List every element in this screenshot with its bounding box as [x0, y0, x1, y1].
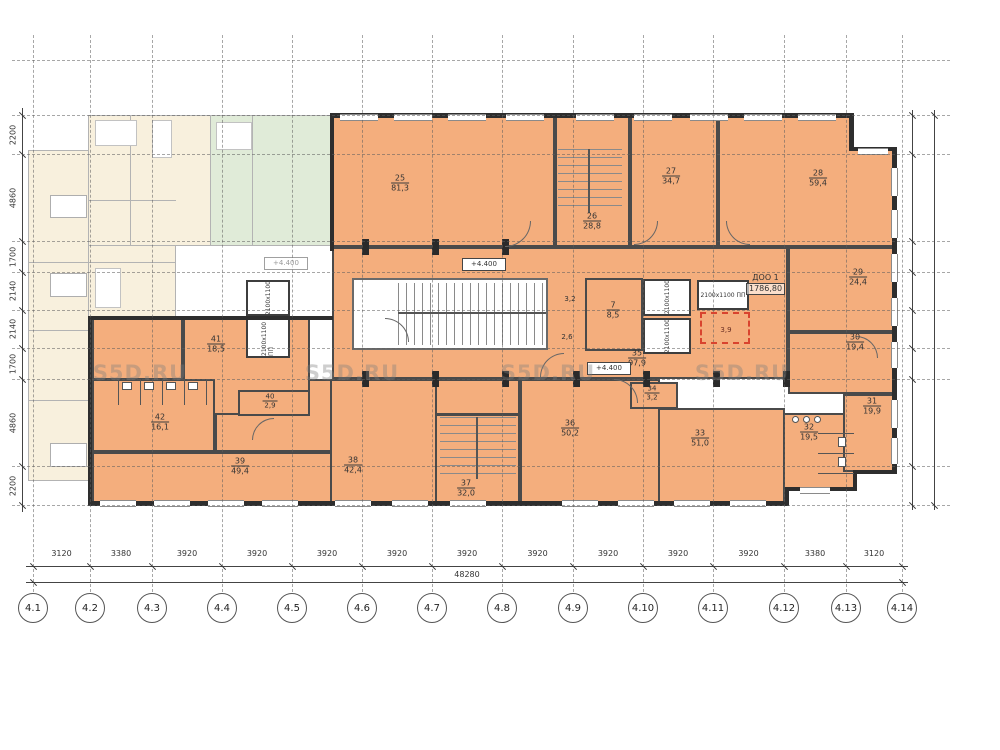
stall-divider: [818, 473, 854, 474]
dimension-label: 3920: [457, 549, 477, 558]
grid-line-horizontal: [12, 115, 950, 116]
watermark: S5D.RU: [305, 361, 399, 385]
room-33: [658, 408, 785, 505]
room-label: 402,9: [263, 393, 278, 410]
room-label: 3219,5: [800, 423, 818, 442]
window: [891, 210, 898, 238]
room-area: 8,5: [607, 311, 620, 320]
axis-label: 4.12: [773, 603, 795, 614]
room-area: 28,8: [583, 222, 601, 231]
grid-line-horizontal: [12, 154, 950, 155]
room-number: 29: [849, 268, 867, 278]
area-label: 3,2: [564, 295, 575, 303]
room-area: 3,2: [645, 394, 660, 402]
window: [891, 438, 898, 464]
axis-bubble-4.4: 4.4: [207, 593, 237, 623]
wall: [330, 113, 334, 251]
room-number: 38: [344, 456, 362, 466]
doo-title: ДОО 1: [752, 273, 778, 282]
room-39: [92, 452, 332, 505]
room-label: 2734,7: [662, 167, 680, 186]
ghost-balcony: [50, 443, 87, 467]
room-30: [788, 332, 895, 394]
grid-line-horizontal: [12, 505, 950, 506]
room-number: 36: [561, 419, 579, 429]
dimension-label: 3920: [247, 549, 267, 558]
grid-line-vertical: [643, 35, 644, 592]
room-number: 39: [231, 457, 249, 467]
dimension-label: 3380: [805, 549, 825, 558]
window: [891, 254, 898, 282]
grid-line-vertical: [33, 35, 34, 592]
axis-label: 4.6: [354, 603, 370, 614]
elevation-marker: +4.400: [264, 257, 308, 270]
room-label: 2581,3: [391, 174, 409, 193]
room-label: 3119,9: [863, 397, 881, 416]
ghost-wall: [28, 150, 89, 151]
room-number: 41: [207, 335, 225, 345]
room-number: 30: [846, 333, 864, 343]
grid-line-vertical: [222, 35, 223, 592]
ghost-wall: [28, 480, 89, 481]
area-label: 2,6: [561, 333, 572, 341]
dimension-label: 3920: [598, 549, 618, 558]
floor-plan: ДОО 1 1786,80 48280 2581,32628,82734,728…: [0, 0, 1000, 750]
room-label: 3650,2: [561, 419, 579, 438]
stall-divider: [206, 379, 207, 405]
dimension-label: 2140: [9, 281, 18, 301]
ghost-wall: [28, 150, 29, 481]
grid-line-vertical: [502, 35, 503, 592]
axis-bubble-4.3: 4.3: [137, 593, 167, 623]
dimension-total: 48280: [454, 570, 479, 579]
axis-bubble-4.7: 4.7: [417, 593, 447, 623]
axis-bubble-4.2: 4.2: [75, 593, 105, 623]
dimension-label: 3120: [864, 549, 884, 558]
axis-label: 4.2: [82, 603, 98, 614]
room-number: 31: [863, 397, 881, 407]
dimension-label: 2200: [9, 475, 18, 495]
axis-label: 4.7: [424, 603, 440, 614]
room-label: 2859,4: [809, 169, 827, 188]
axis-bubble-4.5: 4.5: [277, 593, 307, 623]
axis-label: 4.8: [494, 603, 510, 614]
dimension-line: [26, 582, 908, 583]
axis-bubble-4.12: 4.12: [769, 593, 799, 623]
room-number: 42: [151, 413, 169, 423]
window: [891, 342, 898, 368]
room-area: 50,2: [561, 429, 579, 438]
room-label: 4216,1: [151, 413, 169, 432]
elevator-shaft: 2100х1100 ПП: [246, 318, 290, 358]
room-number: 27: [662, 167, 680, 177]
axis-label: 4.3: [144, 603, 160, 614]
notch-fill: [855, 474, 897, 505]
room-area: 32,0: [457, 489, 475, 498]
sink-fixture: [792, 416, 799, 423]
staircase-37-stringer: [476, 417, 478, 479]
grid-line-horizontal: [12, 466, 950, 467]
ghost-wall: [88, 245, 176, 246]
toilet-fixture: [838, 437, 846, 447]
wall: [849, 113, 854, 151]
axis-label: 4.10: [632, 603, 654, 614]
axis-label: 4.9: [565, 603, 581, 614]
room-number: 34: [645, 385, 660, 394]
room-label: 4118,5: [207, 335, 225, 354]
elevator-shaft: 2100х1100 ПП: [697, 280, 749, 310]
dimension-label: 1700: [9, 353, 18, 373]
dimension-label: 3920: [177, 549, 197, 558]
grid-line-vertical: [902, 35, 903, 592]
notch-fill: [853, 115, 897, 148]
ghost-fixture: [95, 120, 137, 146]
room-number: 40: [263, 393, 278, 402]
grid-line-vertical: [362, 35, 363, 592]
room-label: 343,2: [645, 385, 660, 402]
axis-label: 4.13: [835, 603, 857, 614]
ghost-fixture: [95, 268, 121, 308]
ghost-wall: [210, 115, 211, 246]
axis-bubble-4.14: 4.14: [887, 593, 917, 623]
room-number: 37: [457, 479, 475, 489]
room-label: 3949,4: [231, 457, 249, 476]
room-number: 28: [809, 169, 827, 179]
room-29: [788, 247, 895, 332]
room-area: 59,4: [809, 179, 827, 188]
ghost-balcony: [50, 195, 87, 218]
ghost-wall: [252, 115, 253, 245]
total-area-label: ДОО 1 1786,80: [746, 273, 785, 295]
dimension-label: 3920: [527, 549, 547, 558]
room-38: [330, 379, 437, 505]
red-room-area: 3,9: [720, 326, 731, 334]
window: [891, 400, 898, 428]
grid-line-horizontal: [12, 348, 950, 349]
grid-line-vertical: [292, 35, 293, 592]
room-label: 2924,4: [849, 268, 867, 287]
ghost-wall: [175, 245, 176, 319]
window: [800, 487, 830, 494]
grid-line-horizontal: [12, 60, 950, 61]
room-area: 49,4: [231, 467, 249, 476]
grid-line-horizontal: [12, 272, 950, 273]
room-area: 16,1: [151, 423, 169, 432]
dimension-label: 2200: [9, 124, 18, 144]
axis-bubble-4.8: 4.8: [487, 593, 517, 623]
wall: [855, 470, 897, 474]
dimension-label: 3920: [738, 549, 758, 558]
room-number: 35: [628, 349, 646, 359]
axis-bubble-4.10: 4.10: [628, 593, 658, 623]
room-label: 3351,0: [691, 429, 709, 448]
dimension-label: 3380: [111, 549, 131, 558]
axis-bubble-4.9: 4.9: [558, 593, 588, 623]
room-area: 2,9: [263, 402, 278, 410]
dimension-label: 3920: [387, 549, 407, 558]
wall: [88, 316, 333, 320]
grid-line-horizontal: [12, 310, 950, 311]
axis-label: 4.4: [214, 603, 230, 614]
room-area: 19,4: [846, 343, 864, 352]
grid-line-vertical: [573, 35, 574, 592]
window: [891, 168, 898, 196]
axis-label: 4.5: [284, 603, 300, 614]
axis-bubble-4.13: 4.13: [831, 593, 861, 623]
dimension-label: 3920: [317, 549, 337, 558]
grid-line-vertical: [846, 35, 847, 592]
room-number: 26: [583, 212, 601, 222]
ghost-wall: [28, 330, 89, 331]
axis-label: 4.14: [891, 603, 913, 614]
room-area: 18,5: [207, 345, 225, 354]
room-area: 42,4: [344, 466, 362, 475]
stall-divider: [818, 433, 854, 434]
watermark: S5D.RU: [93, 361, 187, 385]
grid-line-vertical: [90, 35, 91, 592]
ghost-wall: [28, 262, 176, 263]
room-area: 19,9: [863, 407, 881, 416]
ghost-wall: [88, 115, 89, 318]
toilet-fixture: [188, 382, 198, 390]
room-number: 33: [691, 429, 709, 439]
elevator-size-label: 2100х1100 ПП: [700, 292, 745, 299]
staircase-stringer: [398, 312, 546, 314]
ghost-wall: [175, 245, 333, 246]
room-number: 32: [800, 423, 818, 433]
dimension-line: [934, 110, 935, 510]
window: [891, 298, 898, 326]
axis-bubble-4.6: 4.6: [347, 593, 377, 623]
stall-divider: [818, 453, 854, 454]
room-label: 2628,8: [583, 212, 601, 231]
ghost-wall: [88, 200, 176, 201]
room-label: 3842,4: [344, 456, 362, 475]
grid-line-vertical: [432, 35, 433, 592]
ghost-wall: [28, 400, 89, 401]
elevator-size-label: 2100х1100 ПП: [261, 320, 275, 356]
dimension-line: [26, 566, 908, 567]
room-label: 3019,4: [846, 333, 864, 352]
grid-line-horizontal: [12, 241, 950, 242]
room-number: 25: [391, 174, 409, 184]
watermark: S5D.RU: [695, 361, 789, 385]
room-area: 34,7: [662, 177, 680, 186]
axis-label: 4.11: [702, 603, 724, 614]
staircase-26-treads: [558, 149, 622, 213]
room-area: 24,4: [849, 278, 867, 287]
grid-line-vertical: [152, 35, 153, 592]
watermark: S5D.RU: [501, 361, 595, 385]
room-area: 81,3: [391, 184, 409, 193]
axis-bubble-4.11: 4.11: [698, 593, 728, 623]
dimension-label: 3120: [51, 549, 71, 558]
dimension-label: 4860: [9, 187, 18, 207]
room-label: 3732,0: [457, 479, 475, 498]
axis-label: 4.1: [25, 603, 41, 614]
dimension-label: 4860: [9, 412, 18, 432]
staircase-37-treads: [440, 417, 516, 479]
ghost-balcony: [50, 273, 87, 297]
room-number: 7: [607, 301, 620, 311]
toilet-fixture: [838, 457, 846, 467]
dimension-label: 3920: [668, 549, 688, 558]
elevation-marker: +4.400: [462, 258, 506, 271]
room-label: 78,5: [607, 301, 620, 320]
staircase-treads: [398, 283, 546, 345]
room-area: 19,5: [800, 433, 818, 442]
axis-bubble-4.1: 4.1: [18, 593, 48, 623]
ghost-fixture: [152, 120, 172, 158]
dimension-label: 2140: [9, 319, 18, 339]
dimension-label: 1700: [9, 246, 18, 266]
grid-line-vertical: [784, 35, 785, 592]
room-area: 51,0: [691, 439, 709, 448]
staircase-26-stringer: [588, 149, 590, 213]
doo-area-value: 1786,80: [746, 283, 785, 295]
